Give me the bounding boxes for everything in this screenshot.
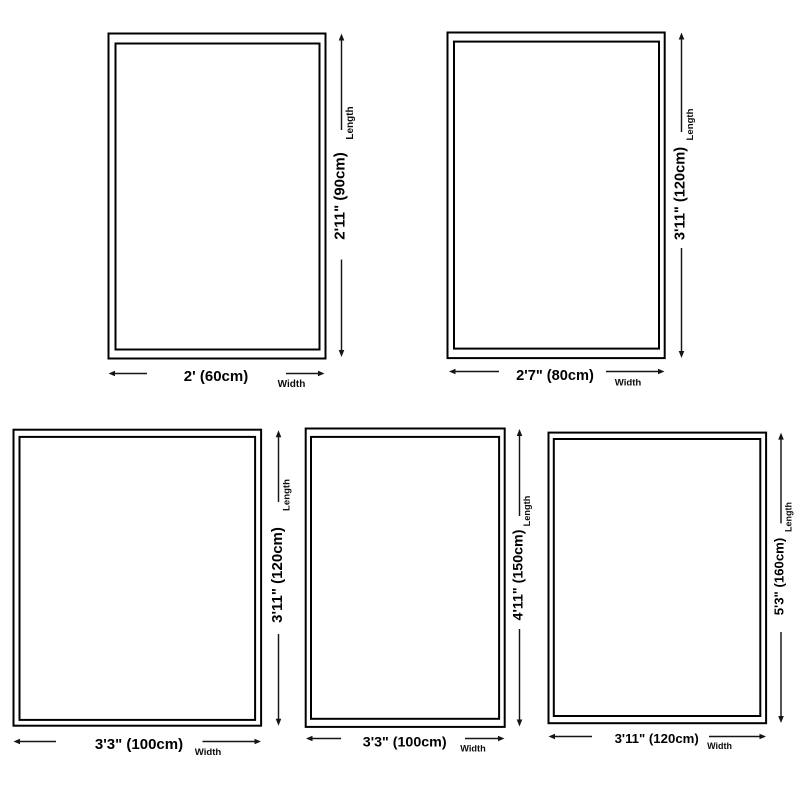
svg-text:2' (60cm): 2' (60cm)	[184, 368, 248, 385]
svg-text:Length: Length	[345, 106, 356, 139]
svg-text:3'11" (120cm): 3'11" (120cm)	[615, 731, 699, 746]
svg-text:Length: Length	[784, 502, 794, 532]
svg-text:Width: Width	[278, 379, 306, 390]
svg-text:3'11" (120cm): 3'11" (120cm)	[269, 527, 286, 623]
svg-text:Width: Width	[460, 744, 486, 754]
svg-text:Width: Width	[707, 741, 732, 751]
svg-text:5'3" (160cm): 5'3" (160cm)	[772, 538, 787, 616]
svg-text:Length: Length	[282, 479, 293, 511]
svg-text:4'11" (150cm): 4'11" (150cm)	[510, 529, 526, 620]
svg-text:3'3" (100cm): 3'3" (100cm)	[95, 736, 183, 753]
svg-text:3'11" (120cm): 3'11" (120cm)	[673, 147, 689, 240]
svg-text:2'7" (80cm): 2'7" (80cm)	[516, 368, 594, 384]
svg-text:Length: Length	[522, 495, 532, 526]
svg-text:3'3" (100cm): 3'3" (100cm)	[363, 735, 447, 751]
svg-text:Width: Width	[615, 378, 642, 389]
svg-text:Length: Length	[685, 108, 696, 140]
svg-text:Width: Width	[195, 747, 222, 758]
svg-text:2'11" (90cm): 2'11" (90cm)	[332, 152, 349, 239]
